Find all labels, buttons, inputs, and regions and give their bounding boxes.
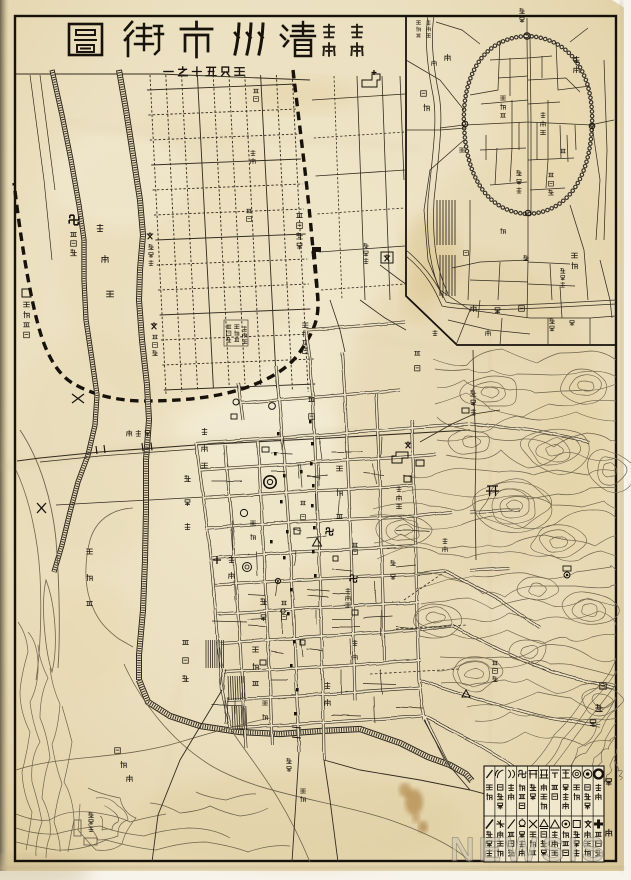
svg-text:NEWSIS: NEWSIS (450, 831, 608, 869)
